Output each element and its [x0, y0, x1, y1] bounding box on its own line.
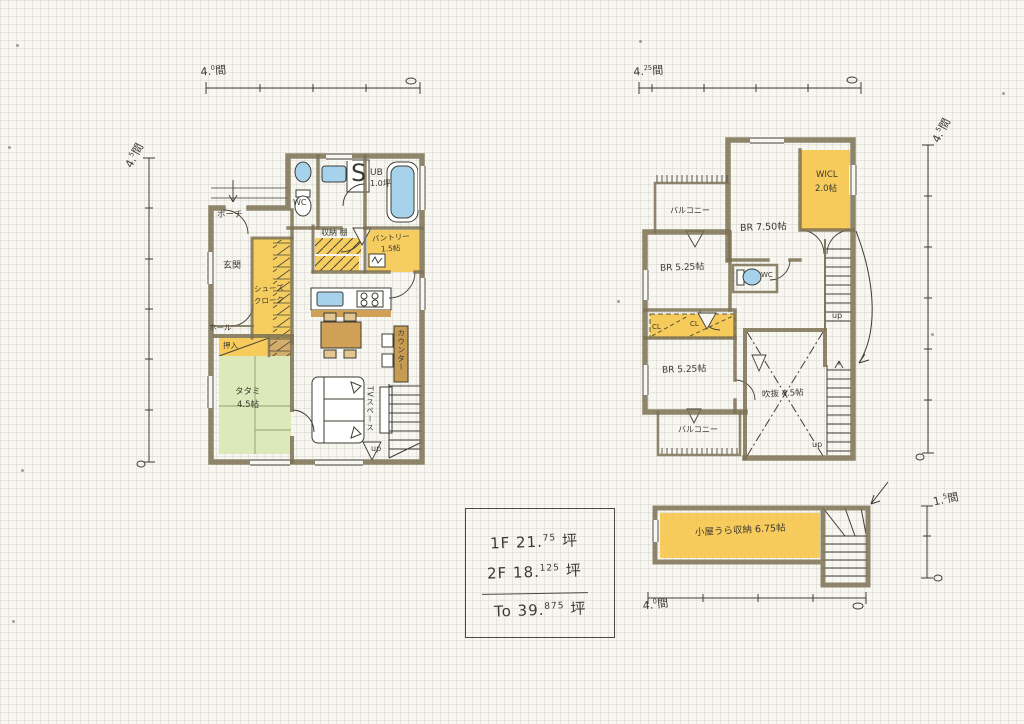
- ink-speck: [16, 44, 19, 47]
- ink-speck: [639, 40, 642, 43]
- dimension-attic-bottom: 4.0間: [638, 588, 876, 622]
- stool-icon: [382, 334, 393, 347]
- washbasin-icon: [295, 162, 311, 182]
- fixtures-2f: [737, 269, 761, 285]
- ink-speck: [1002, 92, 1005, 95]
- closet-label-cl-a: CL: [652, 323, 661, 331]
- room-label-wicl: WICL: [816, 171, 838, 181]
- toilet-icon: [737, 269, 761, 285]
- ink-speck: [21, 469, 24, 472]
- stairs-1f: [389, 384, 422, 458]
- stairs-up-label-lower: up: [812, 440, 822, 449]
- room-label-ub-size: 1.0坪: [370, 179, 391, 188]
- room-label-tatami-size: 4.5帖: [237, 401, 259, 411]
- stairs-up-label: up: [371, 444, 381, 453]
- summary-divider: [482, 592, 588, 595]
- dimension-1f-left: 4.5間: [135, 150, 165, 470]
- room-label-balcony-top: バルコニー: [670, 206, 710, 215]
- kitchen-sink-icon: [317, 292, 343, 306]
- room-label-tv-space: TVスペース: [365, 386, 374, 432]
- floorplan-attic: 小屋うら収納 6.75帖: [643, 478, 893, 606]
- laundry-sink-icon: [322, 166, 346, 182]
- washing-machine-s-mark: S: [351, 160, 366, 188]
- stairs-2f-lower: [827, 361, 851, 455]
- stool-icon: [382, 354, 393, 367]
- bathtub-icon: [387, 162, 418, 222]
- closet-label-cl-b: CL: [690, 320, 699, 328]
- area-summary-box: 1F 21.75 坪 2F 18.125 坪 To 39.875 坪: [465, 508, 615, 638]
- room-label-br525-lower: BR 5.25帖: [662, 364, 707, 376]
- room-label-porch: ポーチ: [217, 211, 243, 221]
- ink-speck: [617, 300, 620, 303]
- room-label-br525-upper: BR 5.25帖: [660, 262, 705, 274]
- room-label-shoes-2: クローク: [254, 296, 284, 306]
- fixtures: [295, 160, 418, 443]
- room-label-wicl-size: 2.0帖: [815, 185, 837, 195]
- tv-board: [380, 387, 392, 433]
- room-label-genkan: 玄関: [223, 261, 241, 271]
- room-label-br75: BR 7.50帖: [740, 222, 787, 235]
- dimension-1f-top: 4.0間: [198, 70, 428, 98]
- ink-speck: [8, 146, 11, 149]
- stairs-attic: [823, 508, 868, 576]
- dimension-2f-right: 4.5間: [912, 135, 952, 463]
- stairs-up-label-upper: up: [832, 311, 842, 320]
- room-label-wc-2f: WC: [761, 271, 773, 279]
- dimension-label: 4.0間: [200, 64, 227, 79]
- floorplan-2f: バルコニー BR 7.50帖 WICL 2.0帖 BR 5.25帖 WC CL …: [640, 125, 875, 465]
- floorplan-1f: WC S UB 1.0坪 ポーチ 玄関 シューズ クローク ホール 押入 タタミ…: [193, 148, 433, 470]
- room-label-balcony-bottom: バルコニー: [678, 425, 718, 434]
- stair-link-arrow: [856, 231, 872, 363]
- room-label-tatami: タタミ: [235, 388, 261, 398]
- summary-row-1f: 1F 21.75 坪: [490, 529, 579, 553]
- room-label-pantry-size: 1.5帖: [381, 244, 401, 254]
- attic-arrow: [871, 482, 888, 504]
- dimension-2f-top: 4.25間: [633, 68, 871, 98]
- room-label-shelf: 収納 棚: [321, 228, 348, 237]
- room-label-shoes-1: シューズ: [254, 284, 284, 294]
- floorplan-1f-drawing: [193, 148, 433, 470]
- dimension-attic-right: 1.5間: [915, 498, 960, 588]
- room-label-wc: WC: [293, 198, 307, 207]
- room-label-counter: カウンター: [396, 329, 405, 372]
- ink-speck: [12, 620, 15, 623]
- floorplan-2f-drawing: [640, 125, 875, 465]
- windows-attic: [651, 520, 660, 542]
- sketch-floorplan-page: WC S UB 1.0坪 ポーチ 玄関 シューズ クローク ホール 押入 タタミ…: [0, 0, 1024, 724]
- summary-row-2f: 2F 18.125 坪: [487, 559, 582, 583]
- room-label-hall: ホール: [209, 324, 232, 333]
- summary-row-total: To 39.875 坪: [494, 597, 587, 621]
- dining-set: [321, 313, 361, 358]
- stove-icon: [357, 291, 383, 307]
- floorplan-attic-drawing: [643, 478, 893, 606]
- room-label-ub: UB: [370, 168, 383, 178]
- refrigerator-icon: [369, 254, 385, 267]
- room-label-oshiire: 押入: [223, 342, 238, 351]
- dimension-label: 4.25間: [633, 64, 664, 79]
- sofa-icon: [312, 377, 364, 443]
